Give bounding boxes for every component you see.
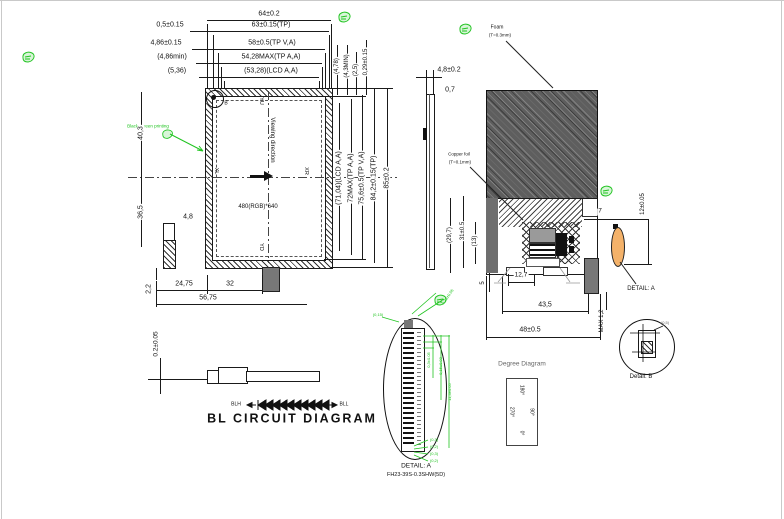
dim-line bbox=[156, 304, 307, 305]
viewing-arrow-head bbox=[264, 171, 273, 181]
dim-4p78: (4,78) bbox=[334, 57, 340, 75]
axis-label-yu: YU bbox=[257, 97, 263, 105]
dim-72: 72MAX(TP A,A) bbox=[347, 152, 354, 203]
dim-line bbox=[190, 31, 329, 32]
ext-line bbox=[588, 294, 589, 314]
dim-13: (13) bbox=[472, 235, 478, 248]
back-right-notch bbox=[582, 199, 597, 217]
back-bottom-tab bbox=[543, 267, 568, 276]
dim-side-4p8: 4,8±0.2 bbox=[436, 66, 461, 73]
dim-4p86: 4,86±0.15 bbox=[149, 39, 182, 46]
dim-4p3min: (4,3MIN) bbox=[344, 53, 350, 78]
ext-line bbox=[319, 81, 320, 88]
ext-line bbox=[486, 276, 487, 340]
dim-54p28: 54,28MAX(TP A,A) bbox=[240, 53, 301, 60]
side-view-inner-line bbox=[429, 94, 430, 268]
ext-line bbox=[224, 81, 225, 88]
detail-a-dim-1: 0,15±0.03 bbox=[439, 356, 443, 376]
dim-4p86min: (4,86min) bbox=[156, 53, 188, 60]
viewing-direction-label: Viewing direction bbox=[269, 117, 275, 162]
ext-line bbox=[174, 223, 175, 240]
ext-line bbox=[329, 35, 330, 88]
detail-b-dim: (0,5) bbox=[660, 321, 670, 325]
dim-line bbox=[156, 290, 262, 291]
dim-2p5: (2,5) bbox=[353, 63, 359, 77]
axis-label-xr: XR bbox=[302, 167, 308, 175]
black-print-note: Black screen printing bbox=[126, 125, 170, 130]
ext-line bbox=[508, 274, 509, 286]
blh-label: BLH bbox=[230, 402, 242, 407]
foam-thickness: (T=0.3mm) bbox=[488, 34, 512, 39]
dim-line bbox=[196, 63, 322, 64]
degree-270: 270° bbox=[509, 407, 514, 417]
back-left-strip bbox=[486, 198, 498, 273]
ext-line bbox=[322, 67, 323, 88]
detail-b-inner-rect bbox=[641, 341, 653, 354]
back-foam-area bbox=[486, 90, 598, 200]
ext-line bbox=[600, 294, 601, 340]
dim-line bbox=[508, 282, 534, 283]
detail-b-marker-label: B bbox=[223, 101, 228, 106]
approval-stamp-icon bbox=[160, 128, 176, 141]
ext-line bbox=[262, 275, 263, 294]
dim-2p2: 2,2 bbox=[145, 283, 152, 295]
ext-line bbox=[331, 24, 332, 88]
axis-label-yd: YD bbox=[257, 243, 263, 251]
bl-baseline bbox=[148, 379, 207, 380]
dim-12p7: 12,7 bbox=[514, 273, 529, 280]
back-component bbox=[569, 236, 574, 243]
ext-line bbox=[502, 276, 503, 314]
viewing-arrow-shaft bbox=[250, 175, 264, 178]
ext-line bbox=[213, 35, 214, 88]
dim-48: 48±0.5 bbox=[518, 326, 541, 333]
ext-line bbox=[325, 53, 326, 88]
detail-a-dim-7: (0,3) bbox=[429, 452, 439, 456]
dim-7: 7 bbox=[597, 209, 603, 216]
detail-a-part-number: FH23-39S-0.3SHW(5D) bbox=[386, 473, 446, 479]
dim-53p28: (53,28)(LCD A,A) bbox=[243, 67, 299, 74]
detail-a-dim-5: (0,3) bbox=[429, 438, 439, 442]
leader-lines-layer bbox=[0, 0, 784, 519]
back-component bbox=[569, 246, 574, 253]
copper-thickness: (T=0.1mm) bbox=[448, 161, 472, 166]
detail-a-dim-3: 0,28±0.05 bbox=[441, 288, 456, 307]
ext-line bbox=[534, 274, 535, 286]
dim-line bbox=[584, 219, 648, 220]
dim-line bbox=[192, 49, 325, 50]
axis-label-xl: XL bbox=[212, 168, 218, 175]
dim-43p5: 43,5 bbox=[537, 301, 553, 308]
dim-line bbox=[502, 311, 588, 312]
back-ic-chip bbox=[529, 228, 556, 243]
dim-75p6: 75,6±0.5(TP V,A) bbox=[358, 150, 365, 205]
front-fpc-tail bbox=[262, 267, 280, 292]
back-connector-block bbox=[556, 233, 567, 256]
ext-line bbox=[331, 267, 393, 268]
dim-12: 12±0.05 bbox=[640, 192, 646, 216]
dim-24p75: 24,75 bbox=[174, 280, 194, 287]
dim-56p75: 56,75 bbox=[198, 294, 218, 301]
detail-a-dim-0: 0,3±0.05 bbox=[427, 351, 431, 369]
detail-b-marker-dot bbox=[211, 95, 216, 100]
dim-63: 63±0.15(TP) bbox=[251, 21, 292, 28]
fpc-connector-detail-a-zone bbox=[611, 227, 625, 267]
led-chain bbox=[246, 398, 338, 412]
dim-0p5: 0,5±0.15 bbox=[155, 21, 184, 28]
dim-0p29: 0,29±0.15 bbox=[363, 48, 369, 77]
dim-line bbox=[199, 77, 319, 78]
front-left-pad bbox=[163, 240, 176, 269]
copper-foil-label: Copper foil bbox=[447, 153, 471, 158]
foam-label: Foam bbox=[490, 25, 505, 30]
bll-label: BLL bbox=[339, 402, 350, 407]
ext-line bbox=[324, 259, 366, 260]
dim-64: 64±0.2 bbox=[257, 10, 280, 17]
detail-b-title: Detail: B bbox=[629, 374, 654, 380]
approval-stamp-icon bbox=[457, 22, 475, 37]
dim-line bbox=[160, 358, 161, 394]
dim-85: 85±0.2 bbox=[383, 166, 390, 189]
sheet-border-left bbox=[1, 0, 2, 519]
dim-32: 32 bbox=[225, 280, 235, 287]
ext-line bbox=[207, 24, 208, 88]
dim-line bbox=[486, 337, 600, 338]
sheet-border-bottom bbox=[0, 0, 784, 1]
dim-line bbox=[648, 219, 649, 264]
degree-0: 0° bbox=[519, 431, 524, 436]
approval-stamp-icon bbox=[20, 50, 38, 65]
ext-line bbox=[324, 96, 366, 97]
ext-line bbox=[218, 53, 219, 88]
dim-0p2: 0.2±0.05 bbox=[154, 330, 161, 357]
dim-31: 31±0.5 bbox=[460, 221, 466, 241]
dim-4p8: 4,8 bbox=[182, 213, 194, 220]
side-view-tape-nub bbox=[423, 128, 427, 140]
ext-line bbox=[624, 264, 652, 265]
back-white-strip bbox=[526, 258, 560, 267]
dim-36p5: 36,5 bbox=[137, 204, 144, 220]
detail-a-dim-4: (0,15) bbox=[372, 313, 384, 317]
detail-a-dim-2: 11,4±0.05 bbox=[448, 382, 452, 401]
detail-a-contact-pins bbox=[403, 332, 414, 446]
dim-line bbox=[489, 273, 490, 292]
dim-line bbox=[156, 268, 157, 280]
ext-line bbox=[207, 275, 208, 294]
ext-line bbox=[331, 88, 393, 89]
bl-profile-block bbox=[218, 367, 248, 384]
side-view-profile bbox=[426, 94, 435, 270]
approval-stamp-icon bbox=[598, 184, 616, 199]
degree-diagram-title: Degree Diagram bbox=[497, 362, 547, 369]
sheet-border-right bbox=[781, 0, 782, 519]
back-label-sticker bbox=[529, 243, 556, 258]
engineering-drawing-sheet: Viewing direction 480(RGB)*640 YU YD XL … bbox=[0, 0, 784, 519]
bl-circuit-title: BL CIRCUIT DIAGRAM bbox=[206, 412, 378, 425]
dim-58: 58±0.5(TP V,A) bbox=[247, 39, 296, 46]
ext-line bbox=[426, 70, 427, 94]
dim-40p3: 40,3 bbox=[137, 125, 144, 141]
dim-side-0p7: 0,7 bbox=[444, 86, 456, 93]
dim-84p2: 84,2±0.15(TP) bbox=[370, 155, 377, 202]
dim-5p36: (5,36) bbox=[167, 67, 187, 74]
detail-a-title: DETAIL: A bbox=[400, 464, 432, 471]
degree-180: 180° bbox=[519, 385, 524, 395]
ext-line bbox=[163, 223, 164, 240]
detail-a-callout: DETAIL: A bbox=[626, 286, 656, 292]
detail-a-connector-top bbox=[404, 320, 413, 328]
dim-line bbox=[163, 223, 174, 224]
ext-line bbox=[433, 70, 434, 94]
degree-90: 90° bbox=[529, 408, 534, 416]
back-fpc-tail bbox=[584, 258, 599, 294]
ext-line bbox=[606, 292, 607, 310]
resolution-label: 480(RGB)*640 bbox=[237, 204, 278, 210]
detail-a-pin-row2 bbox=[417, 332, 421, 446]
dim-29p7: (29,7) bbox=[447, 226, 453, 244]
dim-71p04: (71,04)(LCD A,A) bbox=[335, 150, 342, 206]
dim-line bbox=[416, 77, 442, 78]
approval-stamp-icon bbox=[336, 10, 354, 25]
bl-profile-bar bbox=[246, 371, 320, 382]
detail-a-dim-6: (0,2) bbox=[429, 445, 439, 449]
